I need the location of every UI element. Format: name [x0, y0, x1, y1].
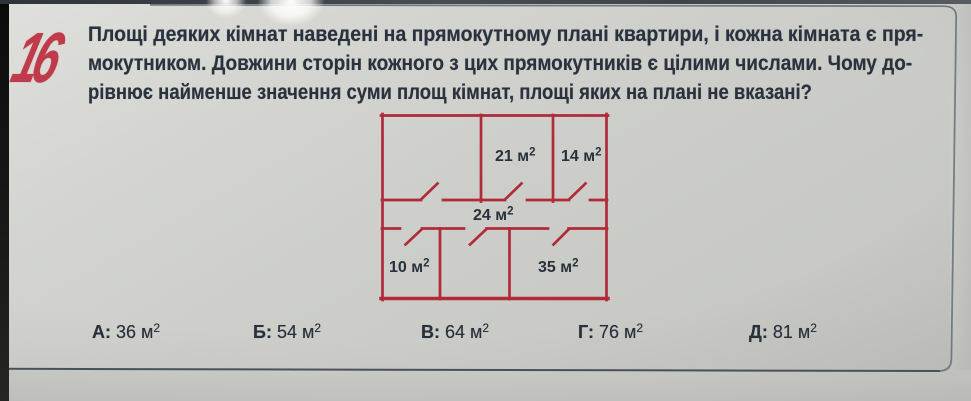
svg-text:10 м2: 10 м2 — [389, 258, 429, 277]
svg-text:21 м2: 21 м2 — [495, 147, 535, 166]
svg-text:35 м2: 35 м2 — [538, 258, 578, 277]
svg-text:14 м2: 14 м2 — [561, 147, 601, 166]
svg-text:24 м2: 24 м2 — [473, 206, 513, 225]
